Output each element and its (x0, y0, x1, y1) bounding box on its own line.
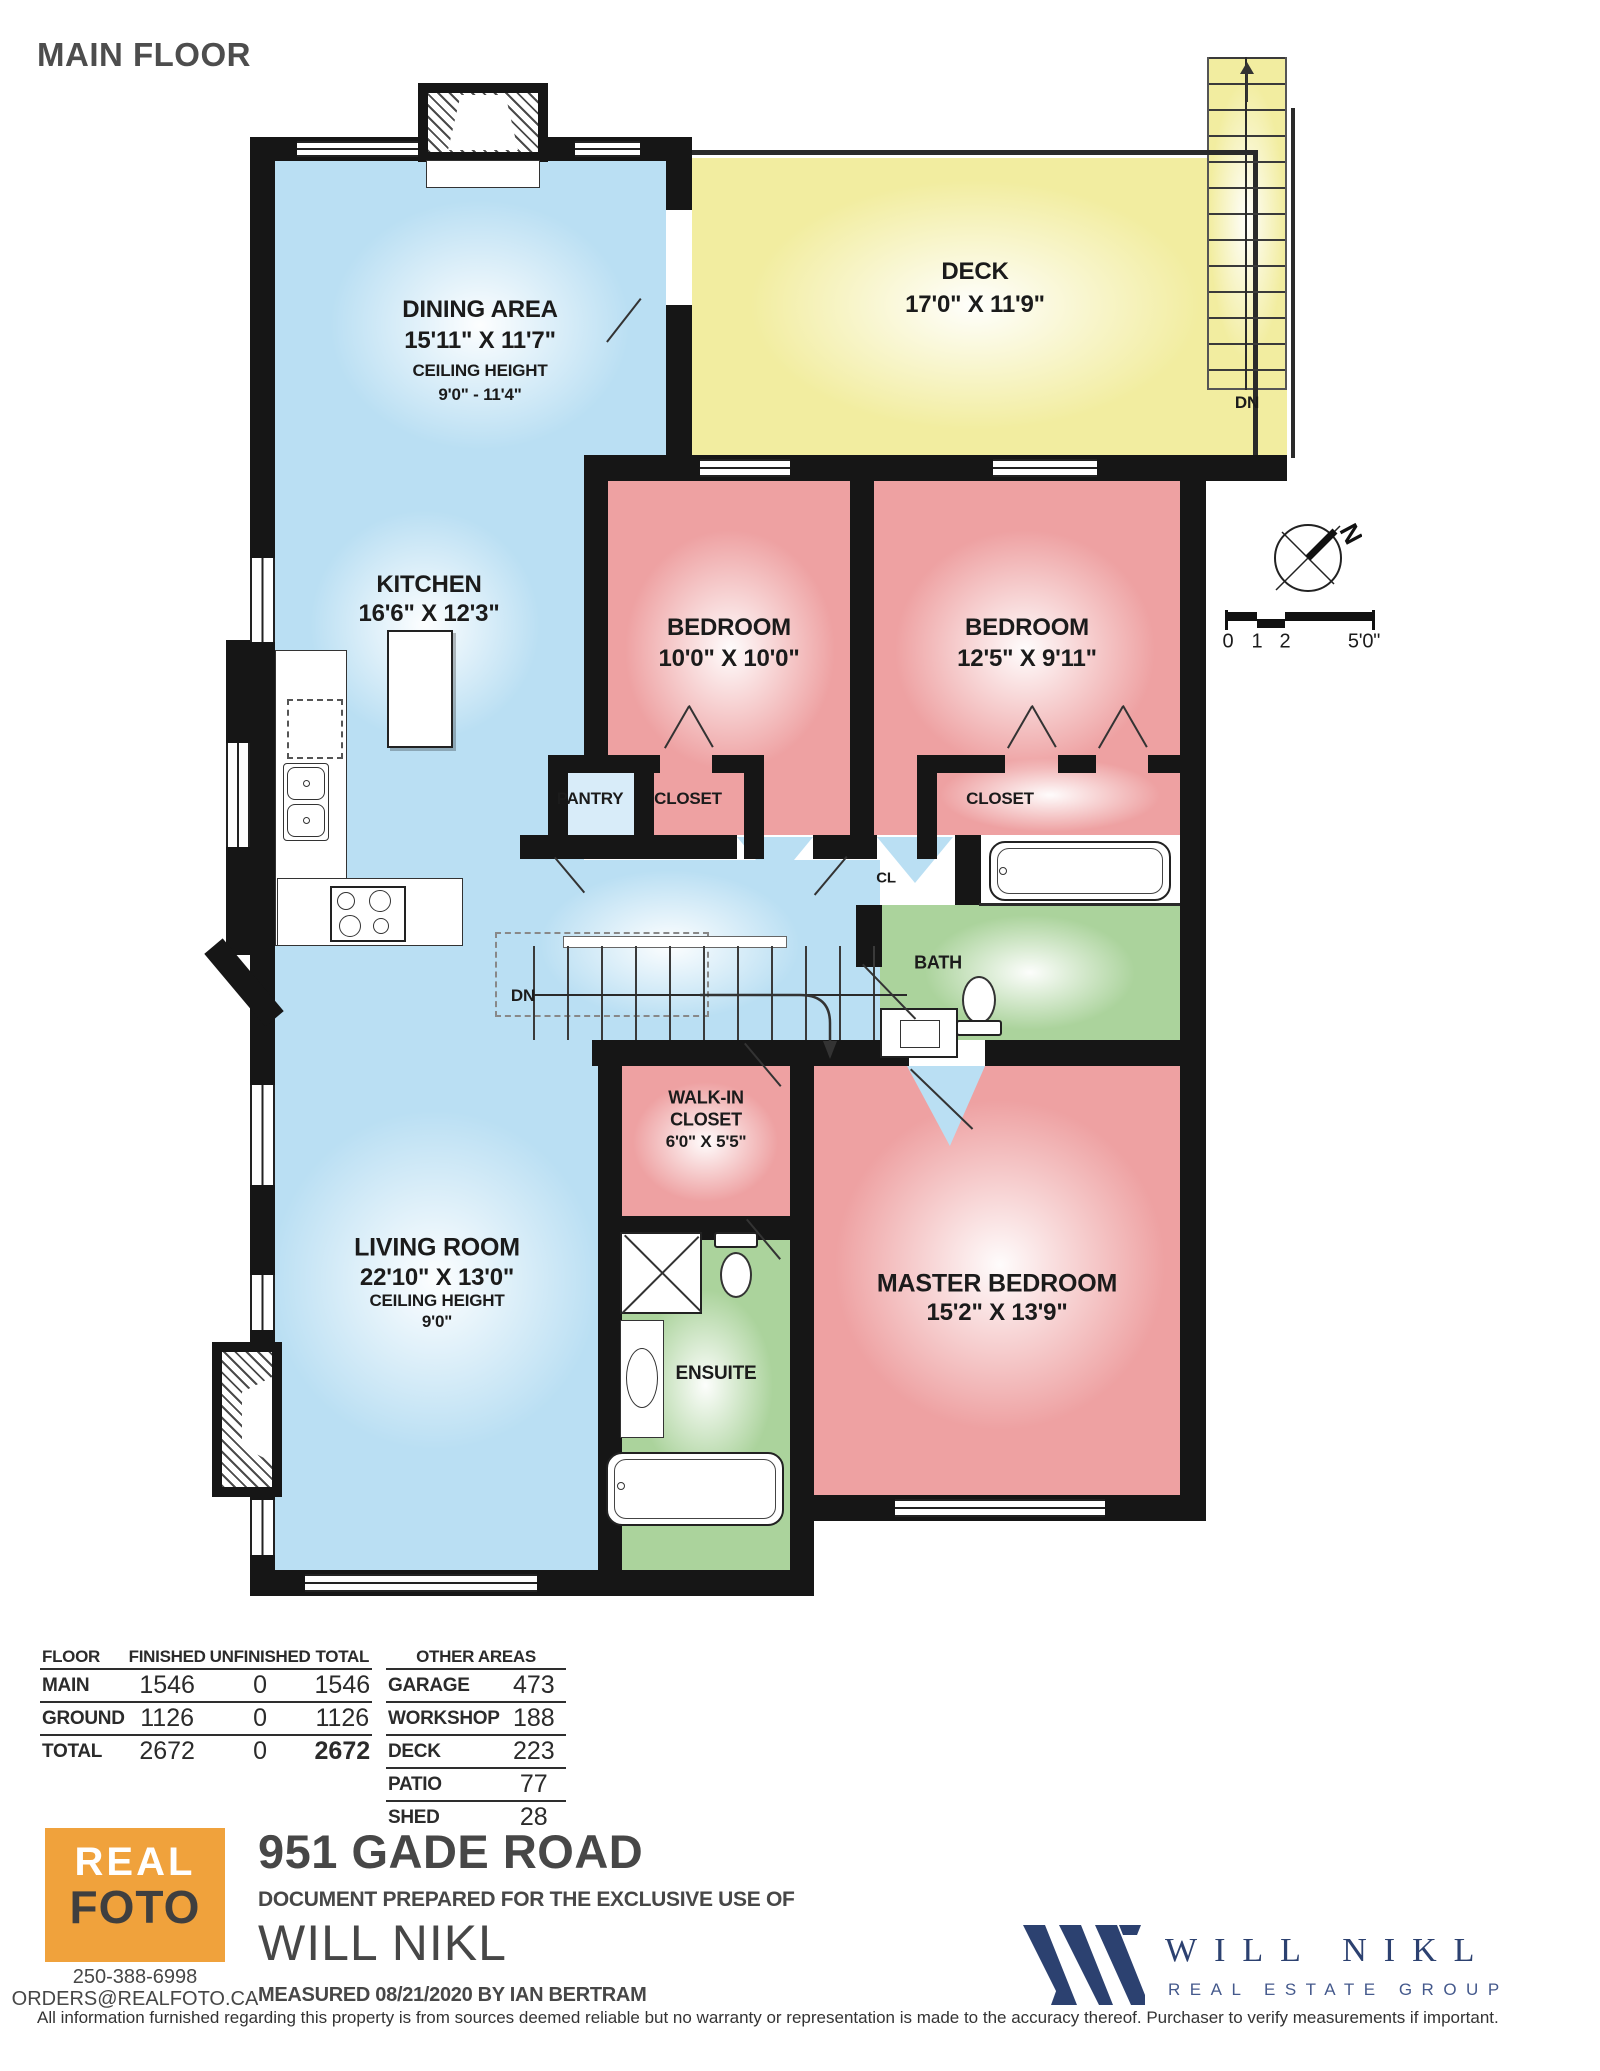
wall (790, 1040, 814, 1570)
shower (620, 1232, 702, 1314)
kitchen-dims: 16'6" X 12'3" (358, 600, 499, 628)
realfoto-logo: REAL FOTO (45, 1828, 225, 1962)
bathtub-inner (997, 848, 1163, 894)
measured-line: MEASURED 08/21/2020 BY IAN BERTRAM (258, 1984, 646, 2007)
wall (1058, 755, 1096, 773)
wall (1180, 455, 1206, 1521)
col-header: FLOOR (40, 1646, 127, 1669)
wall (520, 835, 737, 859)
table-row: DECK223 (386, 1735, 566, 1768)
wall (917, 755, 1005, 773)
other-areas-title: OTHER AREAS (386, 1646, 566, 1669)
table-row: MAIN 1546 0 1546 (40, 1669, 372, 1702)
scale-5: 5'0" (1348, 631, 1380, 654)
closet1-label: CLOSET (654, 789, 722, 809)
ensuite-tub-faucet (617, 1482, 625, 1490)
wall (850, 455, 874, 859)
stove-burner (369, 890, 391, 912)
toilet-tank (956, 1020, 1002, 1036)
scale-2: 2 (1280, 631, 1291, 654)
window (895, 1499, 1105, 1517)
window (250, 1500, 275, 1555)
pantry-label: PANTRY (557, 789, 624, 809)
stove-burner (373, 918, 389, 934)
scale-1: 1 (1252, 631, 1263, 654)
scale-0: 0 (1223, 631, 1234, 654)
table-row: GARAGE473 (386, 1669, 566, 1702)
sink-drain (303, 780, 310, 787)
bedroom2-dims: 12'5" X 9'11" (957, 645, 1097, 673)
cl-label: CL (876, 870, 896, 887)
willnikl-monogram (1015, 1925, 1145, 2005)
deck-stairs-rail (1291, 108, 1295, 458)
window (993, 459, 1097, 477)
living-ceiling-value: 9'0" (422, 1312, 452, 1332)
toilet-bowl (962, 976, 996, 1024)
deck-rail (692, 150, 1258, 155)
window (305, 1574, 537, 1592)
table-row: PATIO77 (386, 1768, 566, 1801)
wall (548, 755, 660, 773)
walkin-label-1: WALK-IN (668, 1088, 744, 1109)
floor-plan-page: MAIN FLOOR (0, 0, 1600, 2071)
ensuite-label: ENSUITE (676, 1363, 757, 1385)
client-name: WILL NIKL (258, 1914, 507, 1972)
realfoto-logo-bottom: FOTO (45, 1882, 225, 1933)
floor-area-table: FLOOR FINISHED UNFINISHED TOTAL MAIN 154… (40, 1646, 372, 1767)
realfoto-phone: 250-388-6998 (73, 1966, 198, 1989)
walkin-dims: 6'0" X 5'5" (666, 1132, 747, 1152)
other-areas-table: OTHER AREAS GARAGE473 WORKSHOP188 DECK22… (386, 1646, 566, 1833)
scale-bar: 0 1 2 5'0" (1225, 608, 1385, 654)
living-label: LIVING ROOM (354, 1234, 520, 1263)
deck-stairs-treads (1209, 57, 1285, 388)
willnikl-brand-name: WILL NIKL (1165, 1932, 1491, 1970)
table-row: WORKSHOP188 (386, 1702, 566, 1735)
prepared-for-line: DOCUMENT PREPARED FOR THE EXCLUSIVE USE … (258, 1888, 795, 1912)
bathtub-faucet (999, 867, 1007, 875)
master-label: MASTER BEDROOM (877, 1270, 1117, 1299)
window (250, 1275, 275, 1330)
stairs-down-arrow (695, 983, 855, 1065)
table-row: GROUND 1126 0 1126 (40, 1702, 372, 1735)
stairs-dn-label: DN (511, 986, 535, 1006)
window (250, 1085, 275, 1185)
stove-burner (337, 892, 355, 910)
dining-label: DINING AREA (402, 296, 558, 324)
bath-label: BATH (914, 953, 962, 974)
bedroom1-label: BEDROOM (667, 614, 791, 642)
deck-label: DECK (941, 258, 1008, 286)
col-header: TOTAL (313, 1646, 373, 1669)
sink-drain (303, 817, 310, 824)
window (250, 558, 275, 642)
wall (955, 835, 981, 905)
living-ceiling-label: CEILING HEIGHT (369, 1291, 504, 1311)
table-row: TOTAL 2672 0 2672 (40, 1735, 372, 1767)
kitchen-label: KITCHEN (376, 571, 481, 599)
wall (744, 755, 764, 859)
dining-ceiling-label: CEILING HEIGHT (412, 361, 547, 381)
compass-icon: N (1262, 512, 1362, 608)
stove-burner (339, 915, 361, 937)
dining-hearth (426, 160, 540, 188)
window (297, 141, 418, 157)
col-header: FINISHED (127, 1646, 208, 1669)
ensuite-toilet-tank (714, 1232, 758, 1248)
page-title: MAIN FLOOR (37, 36, 251, 74)
bath-vanity-sink (900, 1020, 940, 1048)
property-address: 951 GADE ROAD (258, 1824, 643, 1879)
window (226, 743, 250, 847)
master-dims: 15'2" X 13'9" (926, 1299, 1067, 1327)
deck-dims: 17'0" X 11'9" (905, 291, 1045, 319)
col-header: UNFINISHED (208, 1646, 313, 1669)
dining-dims: 15'11" X 11'7" (404, 327, 556, 355)
bedroom1-dims: 10'0" X 10'0" (658, 645, 799, 673)
tub-room-edge (979, 903, 1180, 906)
wall (584, 455, 608, 755)
willnikl-brand-tagline: REAL ESTATE GROUP (1168, 1980, 1509, 2000)
ensuite-sink (626, 1348, 658, 1408)
deck-stairs-dn-label: DN (1235, 393, 1259, 413)
dining-ceiling-value: 9'0" - 11'4" (438, 385, 521, 405)
wall (985, 1040, 1180, 1066)
deck-stairs-stringer (1245, 57, 1247, 390)
wall (712, 755, 744, 773)
disclaimer: All information furnished regarding this… (37, 2008, 1577, 2028)
realfoto-logo-top: REAL (45, 1842, 225, 1882)
deck-stairs-up-arrow (1236, 60, 1258, 106)
ensuite-toilet-bowl (720, 1252, 752, 1298)
bedroom2-label: BEDROOM (965, 614, 1089, 642)
closet2-label: CLOSET (966, 789, 1034, 809)
kitchen-island (387, 630, 453, 748)
walkin-label-2: CLOSET (670, 1110, 742, 1131)
ensuite-tub-inner (614, 1459, 776, 1519)
window (700, 459, 790, 477)
deck-door-opening (666, 210, 692, 305)
living-dims: 22'10" X 13'0" (360, 1264, 514, 1292)
dishwasher (287, 699, 343, 759)
wall (1148, 755, 1180, 773)
window (575, 141, 640, 157)
